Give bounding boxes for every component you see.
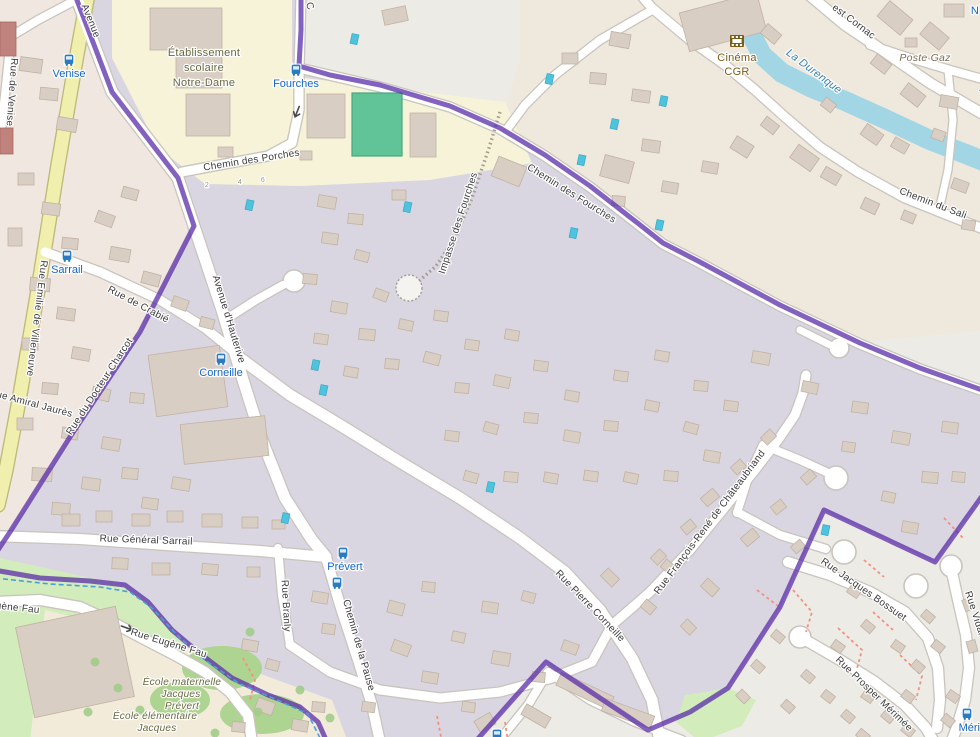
building — [944, 4, 964, 17]
poi-label: Jacques — [137, 723, 177, 734]
map-image[interactable]: VeniseSarrailFourchesCorneillePrévertMér… — [0, 0, 980, 737]
building — [433, 310, 448, 322]
building — [321, 623, 335, 635]
building — [330, 301, 348, 315]
poi-label: N — [971, 5, 979, 17]
building — [247, 567, 260, 577]
building — [641, 139, 660, 153]
building — [321, 232, 338, 245]
bus-stop-icon — [64, 54, 75, 67]
building — [61, 237, 78, 250]
bus-stop-icon — [332, 577, 343, 590]
track-turnaround — [396, 275, 422, 301]
building — [905, 38, 917, 47]
bus-stop-label: Mérimée — [959, 722, 980, 734]
housenumber-label: 6 — [261, 177, 265, 184]
building — [242, 517, 258, 528]
building — [881, 491, 896, 503]
building — [631, 89, 650, 103]
building — [167, 511, 183, 522]
building — [481, 601, 498, 614]
tree — [254, 708, 263, 717]
building — [359, 328, 376, 340]
poi-label: Notre-Dame — [173, 77, 235, 89]
building — [939, 95, 959, 110]
building — [17, 418, 33, 430]
building — [901, 521, 919, 535]
building — [150, 8, 222, 50]
building — [604, 420, 619, 431]
building — [8, 228, 22, 246]
poi-label: École maternelle — [143, 675, 222, 688]
building — [19, 57, 43, 74]
building — [202, 563, 219, 575]
building — [40, 87, 59, 101]
building-red — [0, 22, 16, 56]
building — [422, 581, 436, 592]
building — [307, 94, 345, 138]
poi-label: CGR — [724, 66, 749, 78]
building — [664, 470, 679, 481]
building — [71, 347, 91, 362]
tree — [91, 658, 100, 667]
building — [132, 514, 150, 526]
building — [461, 701, 475, 713]
building — [851, 401, 868, 414]
bus-stop-label: Fourches — [273, 78, 319, 90]
bus-stop-icon — [291, 64, 302, 77]
map-canvas[interactable]: VeniseSarrailFourchesCorneillePrévertMér… — [0, 0, 980, 737]
building — [343, 366, 359, 378]
cinema-icon — [730, 35, 744, 47]
building — [543, 472, 559, 484]
building — [96, 511, 112, 522]
building — [703, 450, 721, 464]
bus-stop-icon — [216, 353, 227, 366]
bus-stop-label: Venise — [52, 68, 85, 80]
building — [491, 651, 511, 667]
building — [141, 497, 158, 510]
bus-stop-icon — [62, 250, 73, 263]
poi-label: Établissement — [168, 46, 240, 59]
bus-stop-icon — [962, 708, 973, 721]
turning-circle — [832, 540, 856, 564]
poi-label: Jacques — [161, 689, 201, 700]
building — [392, 190, 406, 200]
bus-stop-icon — [492, 729, 503, 737]
building — [723, 400, 738, 412]
poi-label: Cinéma — [717, 52, 757, 64]
bus-stop-label: Prévert — [327, 561, 362, 573]
building — [18, 173, 34, 185]
building — [451, 631, 466, 643]
building — [232, 721, 246, 732]
building — [218, 147, 233, 157]
building — [841, 441, 855, 453]
tree — [296, 686, 305, 695]
building — [410, 113, 436, 157]
building — [609, 31, 631, 48]
building — [524, 412, 539, 423]
building — [300, 151, 312, 160]
building — [385, 358, 400, 369]
turning-circle — [904, 574, 928, 598]
building — [694, 380, 709, 391]
building — [564, 390, 580, 402]
building — [180, 416, 269, 465]
housenumber-label: 4 — [238, 179, 242, 186]
poi-label: Poste Gaz — [899, 52, 951, 64]
bus-stop-label: Corneille — [199, 367, 242, 379]
building — [701, 161, 719, 175]
building — [202, 514, 222, 527]
building — [152, 563, 170, 575]
bus-stop-label: Sarrail — [51, 264, 83, 276]
building — [171, 477, 191, 492]
building — [421, 671, 439, 685]
building — [533, 360, 548, 372]
bus-stop-icon — [338, 547, 349, 560]
building — [562, 53, 578, 64]
building — [583, 470, 598, 482]
building — [661, 181, 679, 195]
building — [311, 591, 329, 605]
building — [922, 471, 939, 483]
building — [751, 351, 771, 366]
building — [122, 467, 139, 479]
turning-circle — [283, 270, 305, 292]
building — [41, 202, 60, 216]
tree — [246, 628, 255, 637]
building — [361, 701, 375, 713]
building — [303, 273, 318, 284]
building — [891, 431, 911, 446]
building — [504, 329, 520, 341]
building — [312, 701, 326, 712]
building — [941, 421, 958, 434]
building — [654, 350, 670, 362]
poi-label: scolaire — [184, 62, 224, 74]
building — [464, 339, 479, 351]
building — [241, 639, 259, 653]
building — [42, 382, 59, 394]
building — [112, 558, 129, 570]
building — [101, 437, 121, 452]
building — [186, 94, 230, 136]
building-red — [0, 128, 13, 154]
building — [291, 719, 309, 733]
building — [62, 514, 80, 526]
building — [504, 471, 519, 482]
building — [455, 382, 470, 393]
building — [81, 477, 100, 491]
tree — [114, 684, 123, 693]
building — [56, 307, 75, 321]
poi-label: École élémentaire — [113, 709, 197, 722]
tree — [84, 708, 93, 717]
building — [444, 430, 459, 442]
sports-pitch — [352, 93, 402, 156]
building — [590, 72, 607, 84]
building — [348, 213, 364, 224]
building — [563, 430, 581, 444]
housenumber-label: 2 — [205, 182, 209, 189]
building — [613, 370, 628, 382]
building — [952, 471, 966, 482]
building — [313, 333, 328, 345]
building — [130, 392, 145, 403]
building — [317, 195, 337, 210]
tree — [326, 714, 335, 723]
